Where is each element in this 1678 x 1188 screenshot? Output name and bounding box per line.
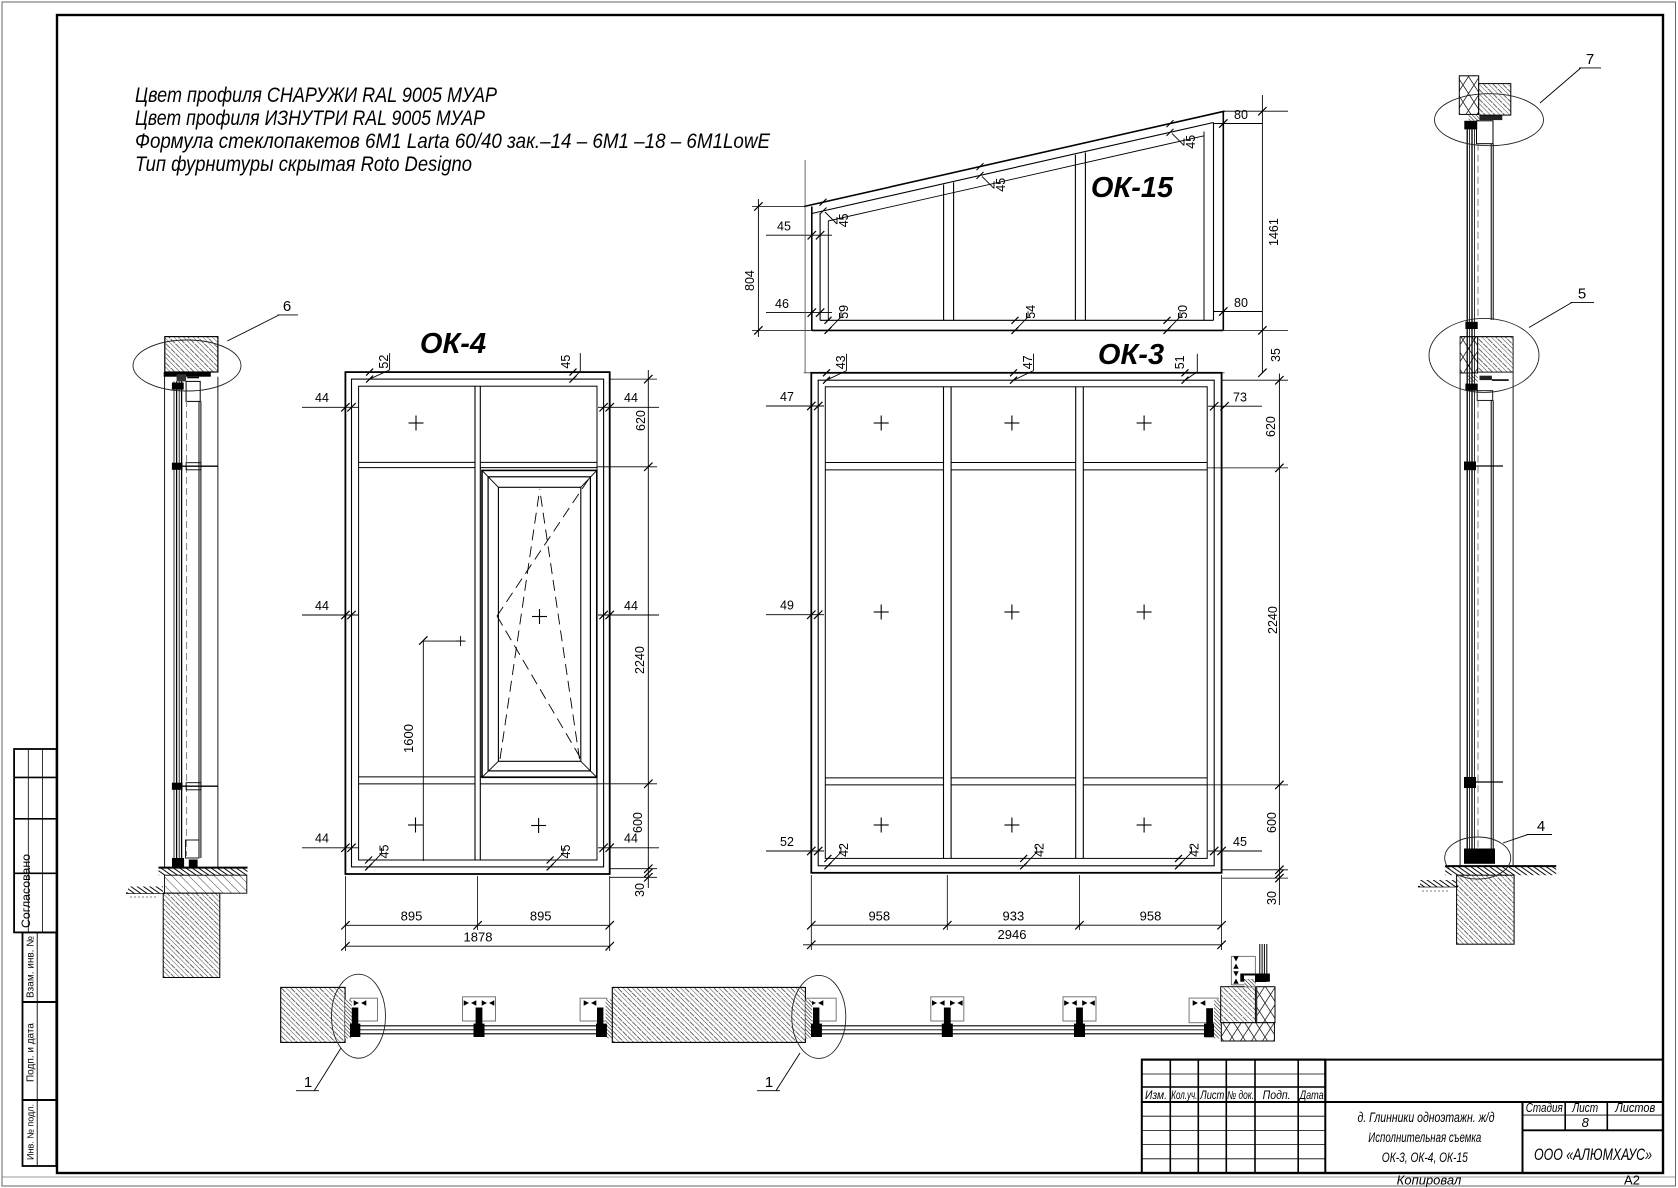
svg-text:933: 933	[1003, 908, 1025, 923]
svg-text:1600: 1600	[401, 724, 416, 753]
svg-text:54: 54	[1024, 305, 1038, 319]
svg-text:73: 73	[1233, 391, 1247, 405]
svg-text:30: 30	[633, 883, 647, 897]
svg-text:Листов: Листов	[1614, 1101, 1655, 1115]
svg-text:47: 47	[780, 390, 794, 404]
svg-text:Взам. инв. №: Взам. инв. №	[26, 936, 37, 998]
svg-text:Кол.уч.: Кол.уч.	[1171, 1090, 1197, 1102]
svg-text:Копировал: Копировал	[1397, 1173, 1462, 1188]
svg-text:4: 4	[1537, 818, 1545, 835]
svg-text:1: 1	[304, 1074, 312, 1091]
svg-text:ОК-15: ОК-15	[1091, 172, 1174, 204]
svg-text:ОК-4: ОК-4	[420, 328, 486, 360]
svg-text:2240: 2240	[1266, 606, 1280, 634]
svg-text:ОК-3, ОК-4, ОК-15: ОК-3, ОК-4, ОК-15	[1382, 1150, 1468, 1165]
svg-text:45: 45	[837, 213, 851, 227]
svg-text:д. Глинники одноэтажн. ж/д: д. Глинники одноэтажн. ж/д	[1358, 1110, 1495, 1125]
svg-text:45: 45	[559, 845, 573, 859]
svg-text:1: 1	[765, 1074, 773, 1091]
svg-text:6: 6	[283, 298, 291, 315]
svg-text:ОК-3: ОК-3	[1098, 339, 1164, 371]
svg-text:50: 50	[1176, 305, 1190, 319]
svg-text:Подп. и дата: Подп. и дата	[26, 1023, 37, 1082]
svg-text:804: 804	[743, 270, 757, 291]
svg-text:А2: А2	[1624, 1173, 1640, 1188]
svg-text:600: 600	[1265, 812, 1279, 833]
svg-text:Исполнительная съемка: Исполнительная съемка	[1368, 1130, 1481, 1145]
svg-text:59: 59	[837, 305, 851, 319]
svg-text:45: 45	[777, 220, 791, 234]
svg-text:45: 45	[994, 178, 1008, 192]
svg-text:44: 44	[315, 832, 329, 846]
svg-text:958: 958	[1140, 908, 1162, 923]
svg-text:51: 51	[1173, 355, 1187, 369]
svg-text:52: 52	[780, 835, 794, 849]
svg-text:Дата: Дата	[1298, 1090, 1324, 1102]
svg-text:35: 35	[1269, 348, 1283, 362]
svg-text:Стадия: Стадия	[1526, 1101, 1563, 1115]
svg-text:8: 8	[1582, 1115, 1590, 1130]
svg-text:Инв. № подл.: Инв. № подл.	[26, 1104, 36, 1160]
svg-text:2240: 2240	[633, 646, 647, 674]
svg-text:42: 42	[1188, 843, 1202, 857]
svg-text:44: 44	[624, 599, 638, 613]
svg-text:620: 620	[634, 410, 648, 431]
svg-text:44: 44	[624, 391, 638, 405]
svg-text:№ док.: № док.	[1227, 1090, 1254, 1102]
svg-text:80: 80	[1234, 108, 1248, 122]
svg-text:895: 895	[401, 909, 423, 924]
svg-text:Изм.: Изм.	[1145, 1090, 1167, 1102]
svg-text:45: 45	[378, 845, 392, 859]
svg-text:Формула стеклопакетов 6М1 Lart: Формула стеклопакетов 6М1 Larta 60/40 за…	[135, 130, 771, 153]
svg-text:45: 45	[1233, 835, 1247, 849]
svg-text:52: 52	[377, 355, 391, 369]
svg-text:45: 45	[559, 355, 573, 369]
svg-text:47: 47	[1021, 355, 1035, 369]
svg-text:Лист: Лист	[1571, 1101, 1598, 1115]
svg-text:Цвет профиля СНАРУЖИ RAL 9005: Цвет профиля СНАРУЖИ RAL 9005 МУАР	[135, 84, 497, 107]
svg-text:Цвет профиля ИЗНУТРИ RAL 9005: Цвет профиля ИЗНУТРИ RAL 9005 МУАР	[135, 107, 485, 130]
svg-text:5: 5	[1578, 286, 1586, 303]
svg-text:Лист: Лист	[1199, 1090, 1224, 1102]
svg-text:895: 895	[530, 909, 552, 924]
svg-text:45: 45	[1184, 135, 1198, 149]
svg-text:80: 80	[1234, 296, 1248, 310]
svg-text:44: 44	[315, 599, 329, 613]
svg-text:1878: 1878	[464, 929, 493, 944]
svg-text:49: 49	[780, 599, 794, 613]
svg-text:7: 7	[1586, 51, 1594, 68]
svg-text:42: 42	[837, 843, 851, 857]
svg-text:43: 43	[834, 355, 848, 369]
svg-text:958: 958	[868, 908, 890, 923]
svg-text:Подп.: Подп.	[1263, 1090, 1291, 1102]
svg-text:2946: 2946	[998, 927, 1027, 942]
svg-text:ООО «АЛЮМХАУС»: ООО «АЛЮМХАУС»	[1534, 1145, 1652, 1164]
svg-text:42: 42	[1033, 843, 1047, 857]
svg-text:620: 620	[1264, 416, 1278, 437]
svg-text:46: 46	[775, 297, 789, 311]
svg-text:Тип фурнитуры скрытая Roto Des: Тип фурнитуры скрытая Roto Designo	[135, 153, 472, 176]
svg-text:30: 30	[1265, 891, 1279, 905]
svg-text:Согласовано: Согласовано	[21, 854, 33, 928]
svg-text:600: 600	[631, 812, 645, 833]
svg-text:44: 44	[315, 391, 329, 405]
svg-text:1461: 1461	[1267, 218, 1281, 246]
